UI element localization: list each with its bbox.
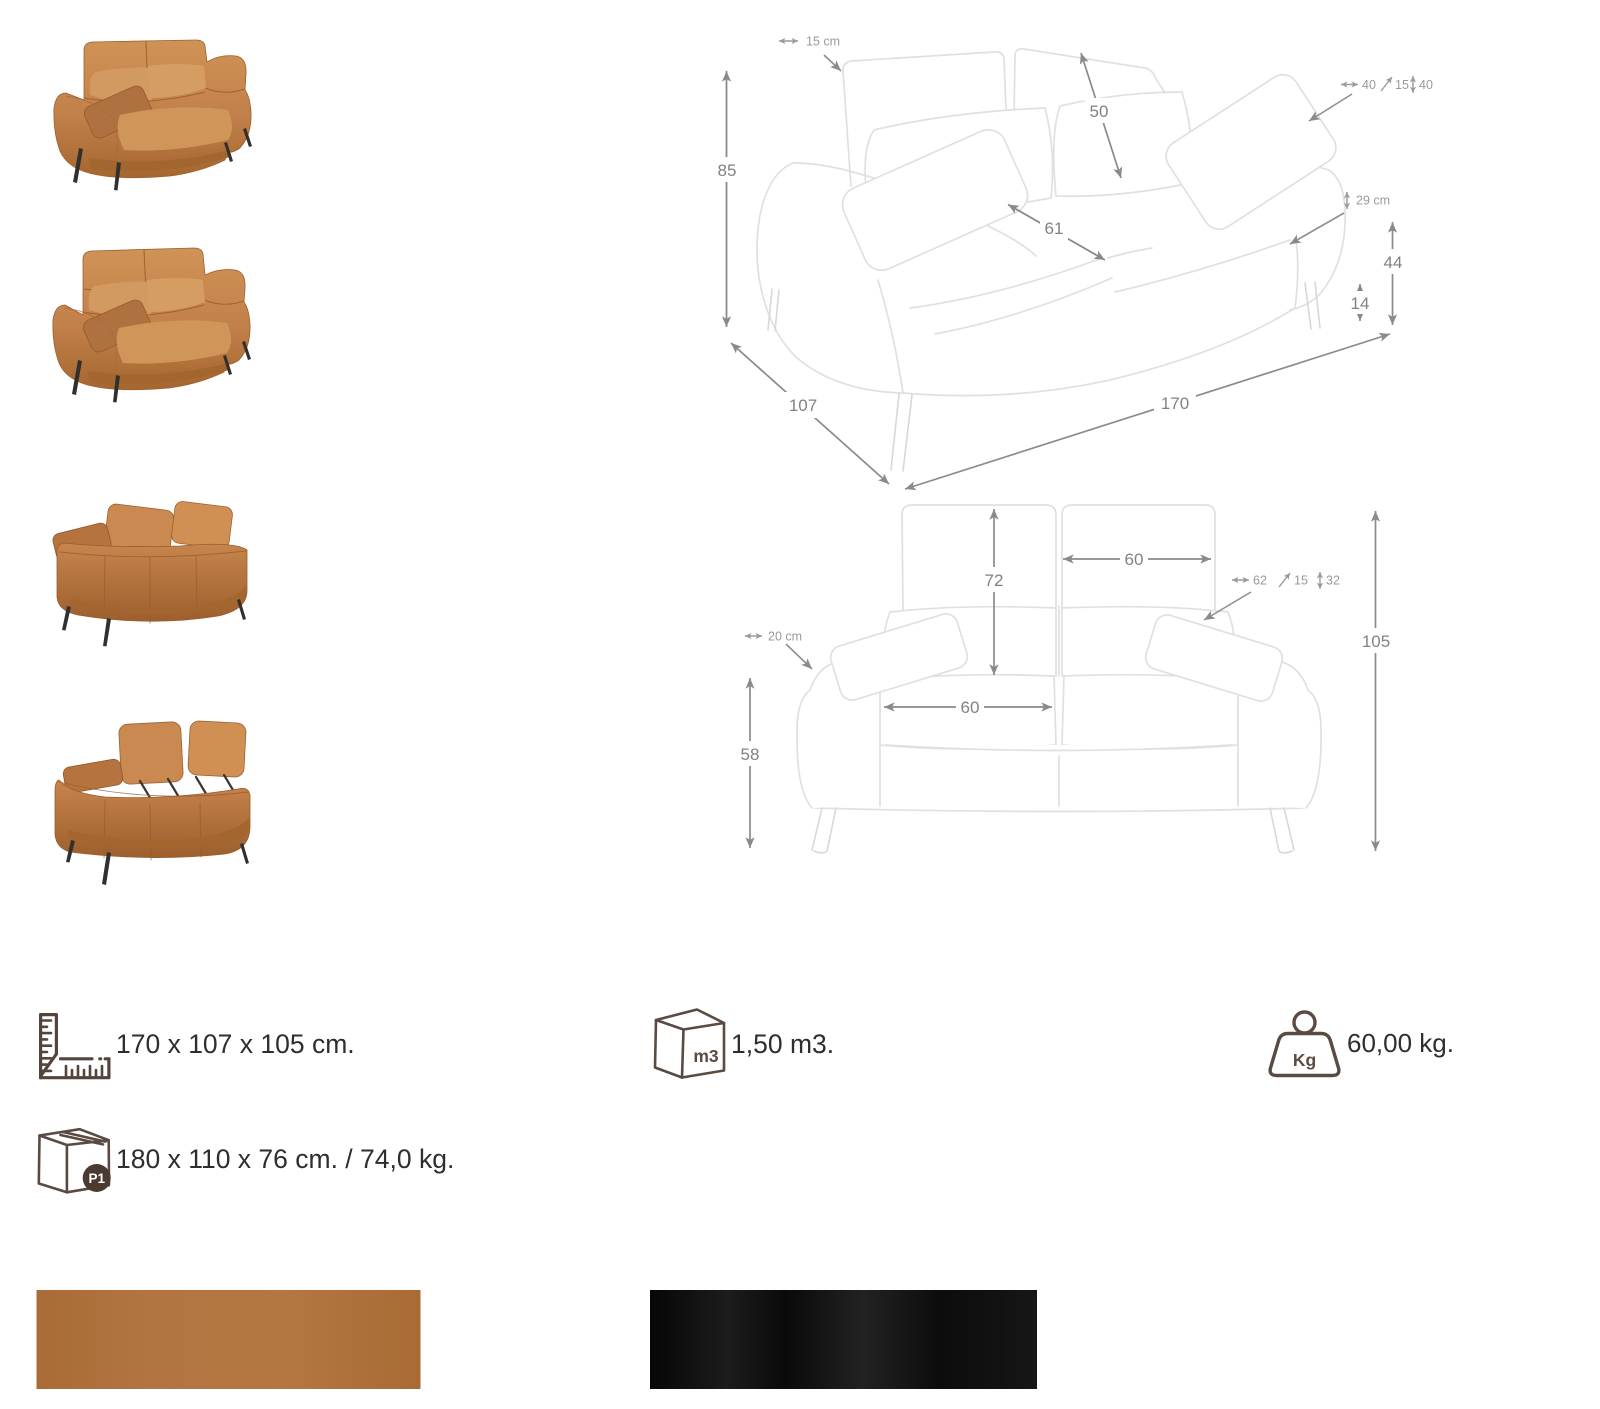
svg-text:85: 85: [718, 161, 737, 180]
svg-text:m3: m3: [693, 1046, 719, 1066]
svg-text:107: 107: [789, 396, 817, 415]
svg-text:60: 60: [961, 698, 980, 717]
svg-text:170 x 107 x 105 cm.: 170 x 107 x 105 cm.: [116, 1029, 355, 1059]
svg-text:32: 32: [1326, 574, 1340, 588]
svg-text:15: 15: [1395, 78, 1409, 92]
svg-text:40: 40: [1419, 78, 1433, 92]
svg-text:72: 72: [985, 571, 1004, 590]
svg-text:40: 40: [1362, 78, 1376, 92]
svg-text:P1: P1: [88, 1171, 105, 1186]
svg-text:170: 170: [1161, 394, 1189, 413]
svg-text:Kg: Kg: [1293, 1050, 1316, 1070]
svg-text:14: 14: [1351, 294, 1370, 313]
svg-text:105: 105: [1362, 632, 1390, 651]
svg-text:60: 60: [1125, 550, 1144, 569]
svg-text:15: 15: [1294, 574, 1308, 588]
svg-text:20 cm: 20 cm: [768, 630, 802, 644]
svg-text:1,50 m3.: 1,50 m3.: [731, 1029, 834, 1059]
svg-text:44: 44: [1384, 253, 1403, 272]
svg-text:180 x 110 x 76 cm. / 74,0 kg.: 180 x 110 x 76 cm. / 74,0 kg.: [116, 1144, 454, 1174]
svg-text:29 cm: 29 cm: [1356, 194, 1390, 208]
svg-text:15 cm: 15 cm: [806, 35, 840, 49]
svg-text:60,00 kg.: 60,00 kg.: [1347, 1028, 1454, 1058]
svg-text:58: 58: [741, 745, 760, 764]
svg-text:50: 50: [1090, 102, 1109, 121]
svg-text:61: 61: [1045, 219, 1064, 238]
svg-text:62: 62: [1253, 574, 1267, 588]
